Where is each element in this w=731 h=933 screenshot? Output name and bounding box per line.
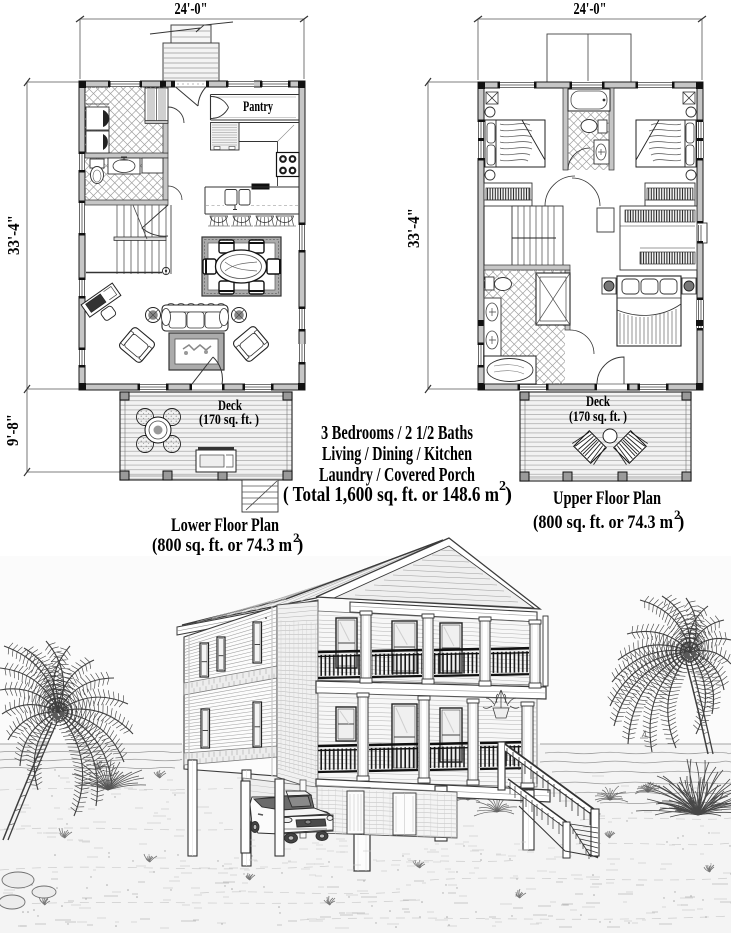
svg-text:Living / Dining / Kitchen: Living / Dining / Kitchen — [322, 443, 472, 465]
svg-text:3 Bedrooms / 2 1/2 Baths: 3 Bedrooms / 2 1/2 Baths — [321, 422, 473, 444]
svg-text:Pantry: Pantry — [243, 99, 273, 115]
svg-text:Deck: Deck — [586, 394, 610, 410]
svg-text:24'-0": 24'-0" — [574, 0, 607, 18]
svg-text:(170 sq. ft. ): (170 sq. ft. ) — [199, 412, 259, 428]
svg-text:): ) — [505, 482, 512, 506]
svg-text:(170 sq. ft. ): (170 sq. ft. ) — [569, 409, 627, 425]
svg-text:): ) — [678, 512, 684, 533]
svg-text:( Total 1,600 sq. ft. or 148.: ( Total 1,600 sq. ft. or 148.6 m — [283, 482, 499, 506]
svg-text:(800 sq. ft. or 74.3 m: (800 sq. ft. or 74.3 m — [533, 512, 673, 533]
svg-text:33'-4": 33'-4" — [4, 215, 23, 255]
svg-text:): ) — [297, 535, 303, 556]
svg-text:33'-4": 33'-4" — [404, 208, 423, 248]
svg-text:Upper Floor Plan: Upper Floor Plan — [553, 488, 661, 509]
svg-text:Lower Floor Plan: Lower Floor Plan — [171, 515, 279, 536]
svg-text:9'-8": 9'-8" — [3, 414, 22, 446]
svg-text:(800 sq. ft. or 74.3 m: (800 sq. ft. or 74.3 m — [152, 535, 292, 556]
svg-text:24'-0": 24'-0" — [175, 0, 208, 18]
